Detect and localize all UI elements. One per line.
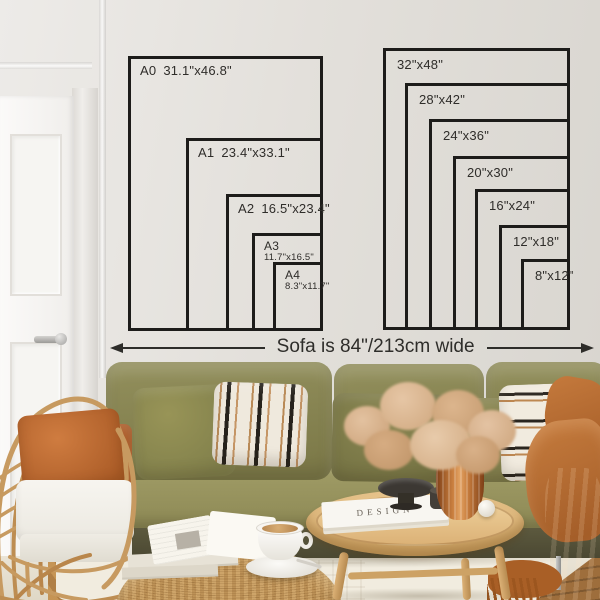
decor-sphere xyxy=(478,500,495,517)
size-label: 20"x30" xyxy=(467,165,513,180)
size-label: A311.7"x16.5" xyxy=(264,239,314,263)
size-label: 24"x36" xyxy=(443,128,489,143)
sofa-width-arrow: Sofa is 84"/213cm wide xyxy=(110,338,594,358)
size-label: 8"x12" xyxy=(535,268,574,283)
size-label: A216.5"x23.4" xyxy=(238,201,330,216)
door-panel xyxy=(10,134,62,296)
dried-flowers xyxy=(336,378,521,478)
size-label: 28"x42" xyxy=(419,92,465,107)
size-label: 16"x24" xyxy=(489,198,535,213)
wall-trim xyxy=(99,0,106,378)
door-handle xyxy=(34,336,64,343)
size-label: A123.4"x33.1" xyxy=(198,145,290,160)
size-rect-a4: A48.3"x11.7" xyxy=(273,262,323,331)
sofa-width-note: Sofa is 84"/213cm wide xyxy=(265,336,487,358)
size-label: 32"x48" xyxy=(397,57,443,72)
wall-molding xyxy=(0,62,92,69)
arrow-line-right xyxy=(487,347,581,349)
flower-puff xyxy=(364,430,414,470)
coffee-surface xyxy=(262,524,298,533)
arrow-line-left xyxy=(123,347,265,349)
decor-bowl-base xyxy=(390,503,422,510)
size-label: 12"x18" xyxy=(513,234,559,249)
living-room-size-guide-scene: A031.1"x46.8" A123.4"x33.1" A216.5"x23.4… xyxy=(0,0,600,600)
size-rect-8x12: 8"x12" xyxy=(521,259,570,330)
size-label: A031.1"x46.8" xyxy=(140,63,232,78)
flower-puff xyxy=(456,436,500,474)
size-label: A48.3"x11.7" xyxy=(285,268,330,292)
